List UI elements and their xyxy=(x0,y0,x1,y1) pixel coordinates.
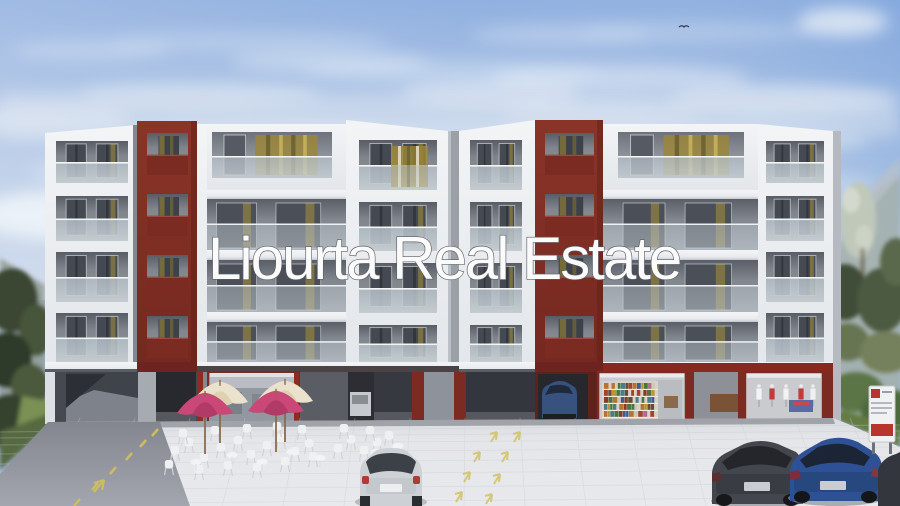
svg-text:Liourta Real Estate: Liourta Real Estate xyxy=(208,225,680,292)
